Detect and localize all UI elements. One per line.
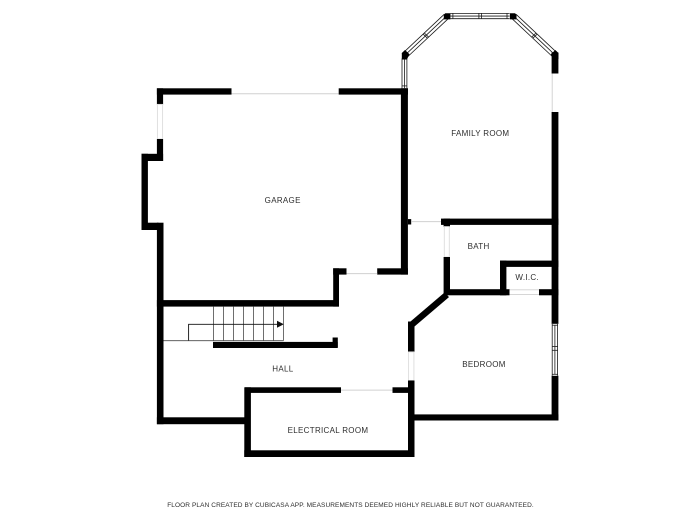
svg-text:W.I.C.: W.I.C. — [515, 273, 539, 282]
svg-text:HALL: HALL — [272, 364, 293, 373]
svg-text:FLOOR PLAN CREATED BY CUBICASA: FLOOR PLAN CREATED BY CUBICASA APP. MEAS… — [167, 502, 534, 509]
svg-text:GARAGE: GARAGE — [265, 196, 301, 205]
svg-text:ELECTRICAL ROOM: ELECTRICAL ROOM — [288, 426, 369, 435]
svg-text:BATH: BATH — [468, 242, 490, 251]
svg-text:BEDROOM: BEDROOM — [462, 360, 505, 369]
svg-text:FAMILY ROOM: FAMILY ROOM — [451, 129, 509, 138]
